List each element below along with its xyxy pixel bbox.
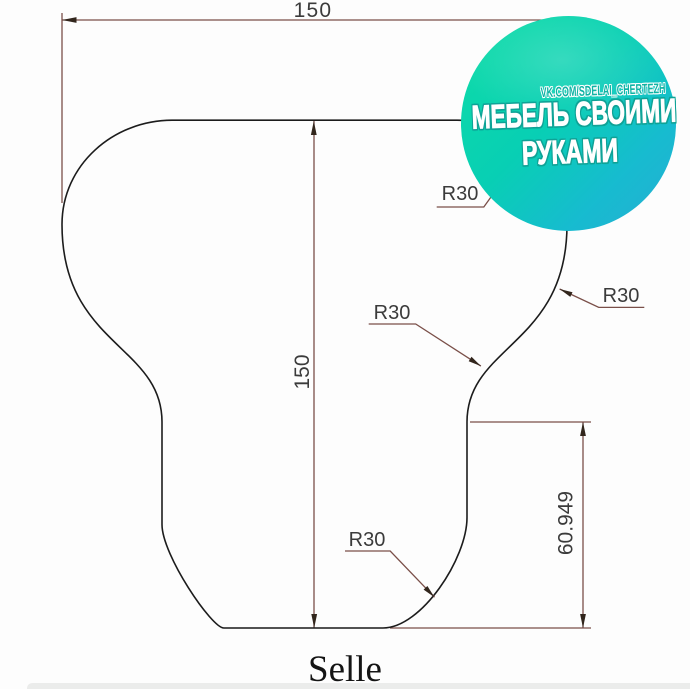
svg-text:150: 150 xyxy=(294,0,333,22)
svg-text:150: 150 xyxy=(291,354,314,389)
svg-text:R30: R30 xyxy=(374,302,411,324)
svg-text:R30: R30 xyxy=(603,285,640,307)
svg-text:R30: R30 xyxy=(442,183,479,205)
svg-text:60.949: 60.949 xyxy=(555,491,578,555)
svg-text:R30: R30 xyxy=(349,529,386,551)
